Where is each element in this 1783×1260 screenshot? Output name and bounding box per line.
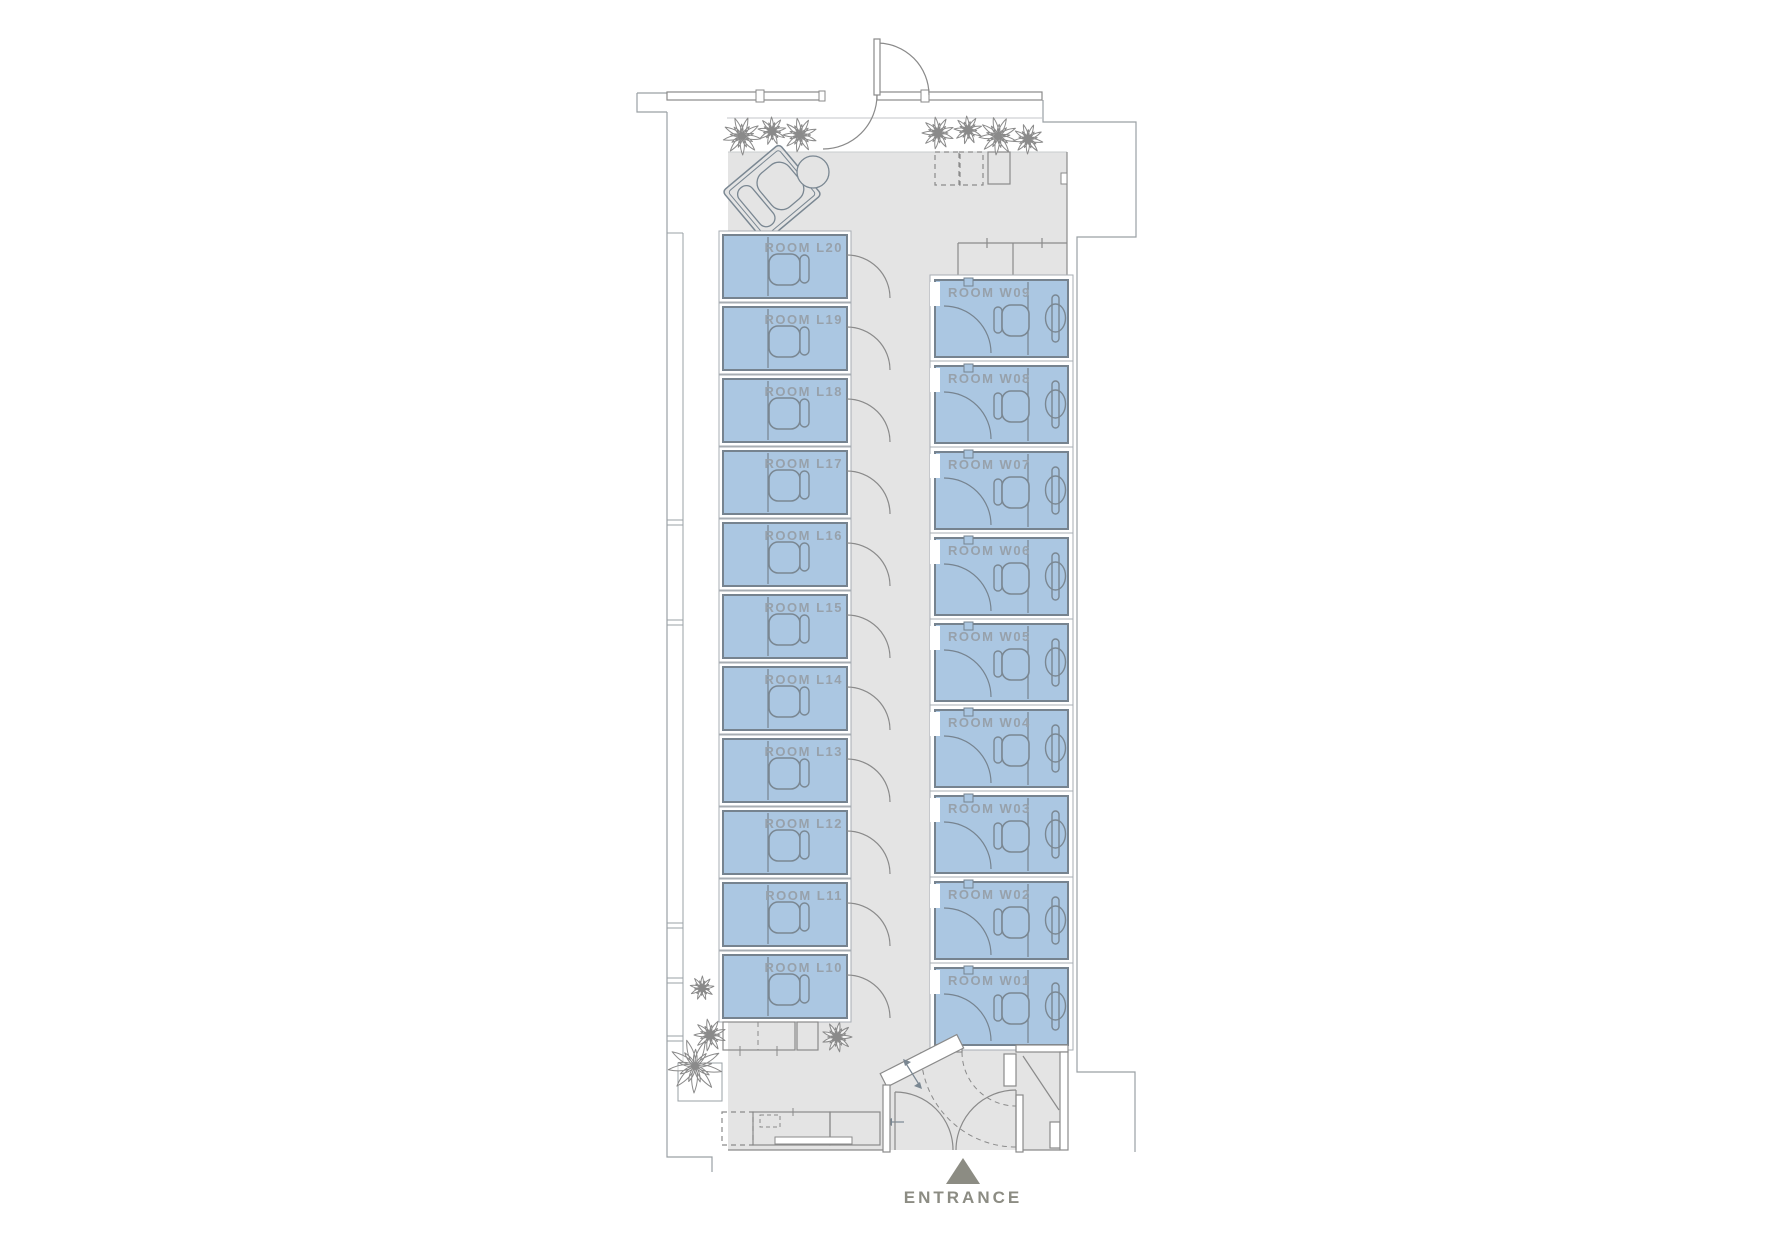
- room-label: ROOM L19: [765, 312, 843, 327]
- office-chair-icon: [1002, 821, 1029, 852]
- office-chair-icon: [800, 255, 809, 283]
- entrance-label: ENTRANCE: [904, 1188, 1022, 1207]
- plant-icon: [1013, 125, 1043, 154]
- window-mullion: [667, 520, 683, 525]
- door-opening: [930, 282, 940, 306]
- entrance-arrow-icon: [946, 1158, 980, 1184]
- room-w08: ROOM W08: [930, 361, 1073, 448]
- office-chair-icon: [769, 614, 800, 645]
- window-mullion: [667, 923, 683, 928]
- office-chair-icon: [769, 470, 800, 501]
- room-w06: ROOM W06: [930, 533, 1073, 620]
- room-w02: ROOM W02: [930, 877, 1073, 964]
- room-label: ROOM L18: [765, 384, 843, 399]
- plant-icon: [694, 1019, 725, 1051]
- window-mullion: [667, 978, 683, 983]
- plant-icon: [922, 117, 953, 149]
- office-chair-icon: [769, 326, 800, 357]
- desk-fixture-icon: [1052, 639, 1059, 686]
- desk-fixture-icon: [1052, 295, 1059, 342]
- room-w05: ROOM W05: [930, 619, 1073, 706]
- room-w07: ROOM W07: [930, 447, 1073, 534]
- office-chair-icon: [1002, 735, 1029, 766]
- desk-fixture-icon: [1052, 811, 1059, 858]
- desk-fixture-icon: [1052, 381, 1059, 428]
- office-chair-icon: [1002, 649, 1029, 680]
- office-chair-icon: [800, 831, 809, 859]
- door-hinge: [819, 91, 825, 101]
- office-chair-icon: [994, 393, 1002, 419]
- outer-wall-left: [637, 93, 712, 1172]
- plant-icon: [690, 976, 714, 999]
- office-chair-icon: [1002, 391, 1029, 422]
- office-chair-icon: [769, 830, 800, 861]
- side-table-icon: [797, 156, 829, 188]
- top-wall: [877, 92, 1042, 100]
- office-chair-icon: [800, 975, 809, 1003]
- room-label: ROOM L10: [765, 960, 843, 975]
- office-chair-icon: [994, 737, 1002, 763]
- room-label: ROOM W04: [948, 715, 1031, 730]
- door-swing-icon: [877, 43, 929, 95]
- office-chair-icon: [800, 903, 809, 931]
- room-label: ROOM L14: [765, 672, 843, 687]
- door-opening: [930, 798, 940, 822]
- desk-fixture-icon: [1052, 983, 1059, 1030]
- plant-icon: [783, 118, 816, 151]
- window-mullion: [921, 90, 929, 102]
- office-chair-icon: [769, 542, 800, 573]
- window-mullion: [756, 90, 764, 102]
- vestibule-wall: [1060, 1052, 1068, 1150]
- room-label: ROOM W01: [948, 973, 1031, 988]
- office-chair-icon: [994, 909, 1002, 935]
- room-label: ROOM L17: [765, 456, 843, 471]
- room-label: ROOM W07: [948, 457, 1031, 472]
- desk-fixture-icon: [1052, 725, 1059, 772]
- plant-icon: [954, 116, 982, 144]
- office-chair-icon: [1002, 563, 1029, 594]
- plant-icon: [979, 118, 1016, 155]
- room-w09: ROOM W09: [930, 275, 1073, 362]
- desk-fixture-icon: [1052, 467, 1059, 514]
- plant-icon: [723, 118, 760, 155]
- door-opening: [930, 712, 940, 736]
- bench-icon: [775, 1137, 852, 1144]
- office-chair-icon: [800, 399, 809, 427]
- floor-plan: ROOM L20ROOM L19ROOM L18ROOM L17ROOM L16…: [0, 0, 1783, 1260]
- window-mullion: [667, 1036, 683, 1041]
- room-label: ROOM W05: [948, 629, 1031, 644]
- room-label: ROOM L13: [765, 744, 843, 759]
- office-chair-icon: [769, 686, 800, 717]
- office-chair-icon: [800, 759, 809, 787]
- office-chair-icon: [1002, 305, 1029, 336]
- office-chair-icon: [1002, 993, 1029, 1024]
- room-label: ROOM W06: [948, 543, 1031, 558]
- office-chair-icon: [1002, 477, 1029, 508]
- office-chair-icon: [769, 398, 800, 429]
- door-opening: [930, 454, 940, 478]
- door-opening: [930, 626, 940, 650]
- room-label: ROOM L16: [765, 528, 843, 543]
- vestibule-wall: [1016, 1095, 1023, 1152]
- floor-plan-svg: ROOM L20ROOM L19ROOM L18ROOM L17ROOM L16…: [0, 0, 1783, 1260]
- vestibule-wall: [1016, 1045, 1068, 1052]
- top-wall: [667, 92, 823, 100]
- room-label: ROOM L11: [765, 888, 843, 903]
- vestibule-wall: [883, 1085, 890, 1152]
- office-chair-icon: [994, 995, 1002, 1021]
- office-chair-icon: [994, 479, 1002, 505]
- office-chair-icon: [800, 615, 809, 643]
- desk-fixture-icon: [1052, 553, 1059, 600]
- inner-wall-left: [667, 233, 683, 1063]
- room-label: ROOM W09: [948, 285, 1031, 300]
- office-chair-icon: [800, 687, 809, 715]
- door-opening: [930, 368, 940, 392]
- office-chair-icon: [994, 651, 1002, 677]
- office-chair-icon: [769, 974, 800, 1005]
- door-opening: [930, 970, 940, 994]
- office-chair-icon: [800, 543, 809, 571]
- door-opening: [930, 540, 940, 564]
- room-label: ROOM W02: [948, 887, 1031, 902]
- office-chair-icon: [800, 471, 809, 499]
- room-w03: ROOM W03: [930, 791, 1073, 878]
- wall-notch: [1061, 173, 1067, 184]
- office-chair-icon: [769, 254, 800, 285]
- door-leaf: [1004, 1054, 1016, 1086]
- room-label: ROOM W08: [948, 371, 1031, 386]
- office-chair-icon: [769, 902, 800, 933]
- room-label: ROOM L20: [765, 240, 843, 255]
- room-label: ROOM L15: [765, 600, 843, 615]
- window-mullion: [667, 620, 683, 625]
- office-chair-icon: [800, 327, 809, 355]
- office-chair-icon: [1002, 907, 1029, 938]
- room-w04: ROOM W04: [930, 705, 1073, 792]
- office-chair-icon: [994, 307, 1002, 333]
- office-chair-icon: [994, 823, 1002, 849]
- office-chair-icon: [769, 758, 800, 789]
- room-label: ROOM L12: [765, 816, 843, 831]
- door-opening: [930, 884, 940, 908]
- plant-icon: [668, 1040, 721, 1093]
- office-chair-icon: [994, 565, 1002, 591]
- door-leaf: [874, 39, 880, 95]
- door-swing-icon: [823, 95, 877, 149]
- room-label: ROOM W03: [948, 801, 1031, 816]
- desk-fixture-icon: [1052, 897, 1059, 944]
- plant-icon: [758, 117, 786, 144]
- wall-pier: [1050, 1122, 1060, 1148]
